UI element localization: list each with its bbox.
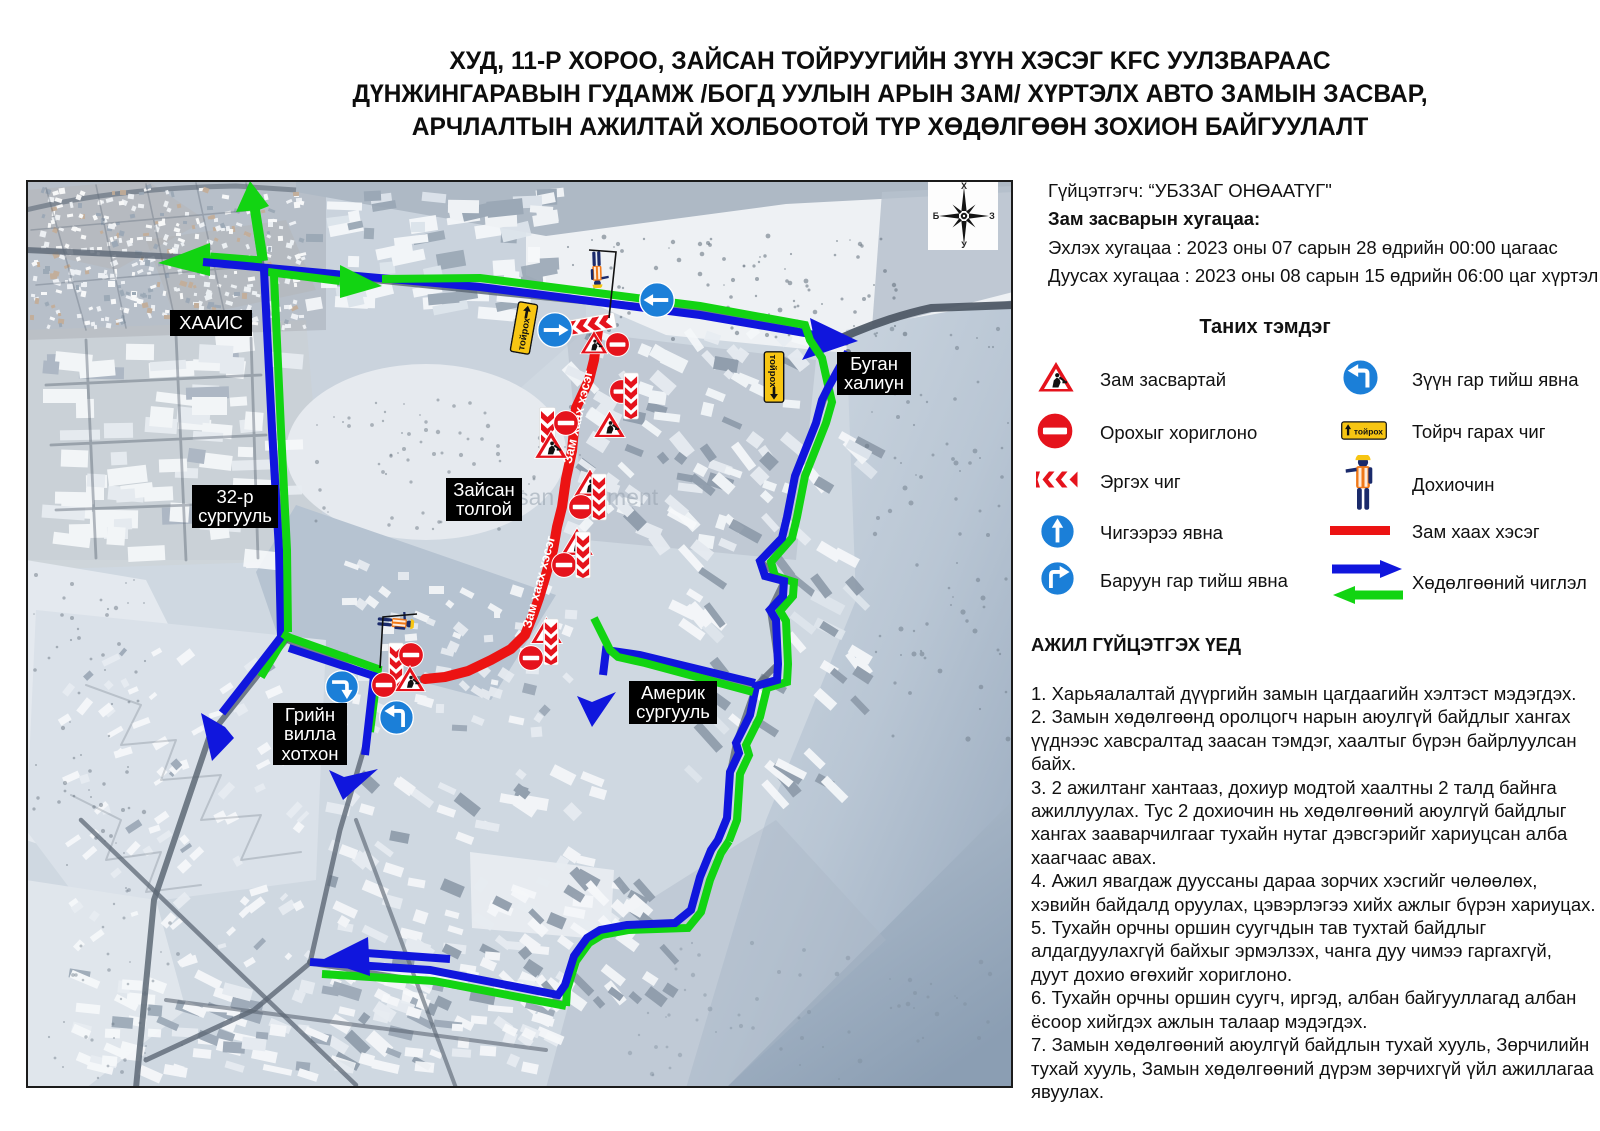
svg-text:У: У [961, 240, 967, 250]
svg-text:З: З [989, 211, 995, 221]
svg-text:ment: ment [607, 484, 659, 510]
svg-text:Б: Б [933, 211, 940, 221]
svg-text:Х: Х [961, 181, 967, 191]
